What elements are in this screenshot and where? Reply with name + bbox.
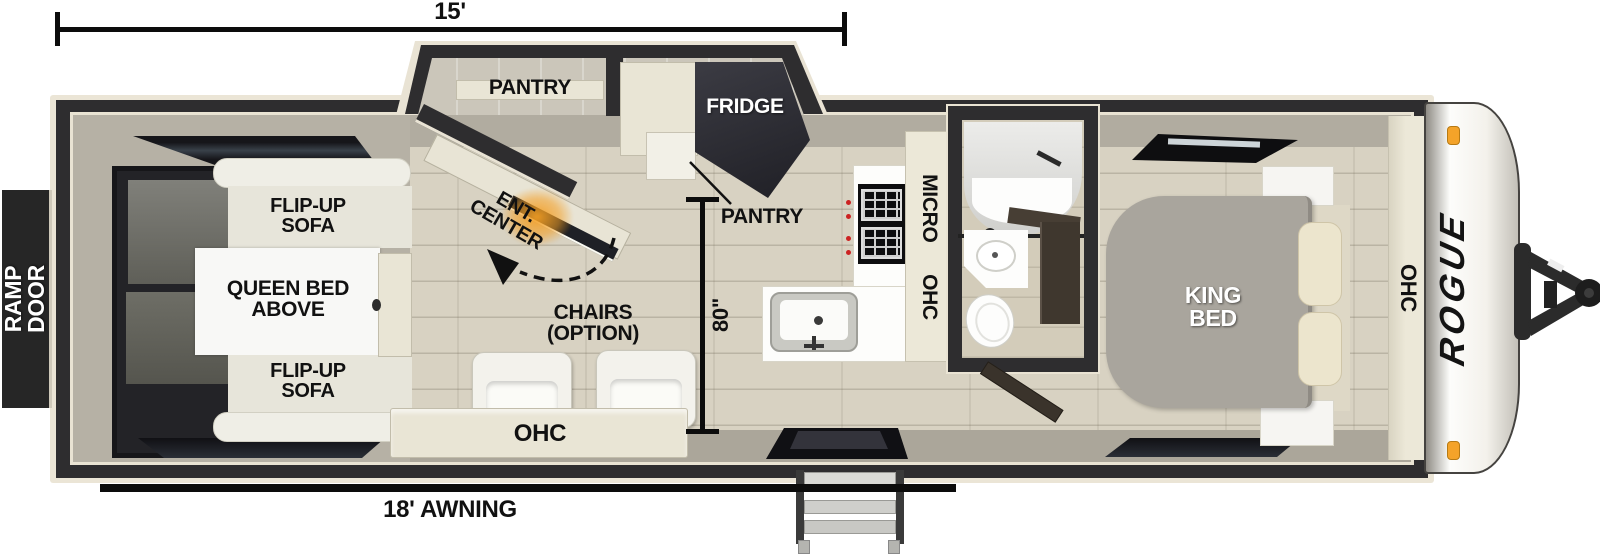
annotation-overlay — [0, 0, 1600, 558]
pantry-leader-line — [690, 162, 731, 204]
rv-floorplan: 15' RAMP DOOR FLIP-UP SOFA QUEEN BED ABO… — [0, 0, 1600, 558]
hitch-coupler-center — [1584, 288, 1594, 298]
tv-swivel-arc — [520, 238, 614, 280]
hitch-tongue — [1514, 243, 1600, 340]
hitch-jack-post — [1544, 281, 1557, 308]
hitch-mount-bar — [1514, 243, 1531, 340]
tv-swivel-arrowhead — [487, 249, 519, 285]
